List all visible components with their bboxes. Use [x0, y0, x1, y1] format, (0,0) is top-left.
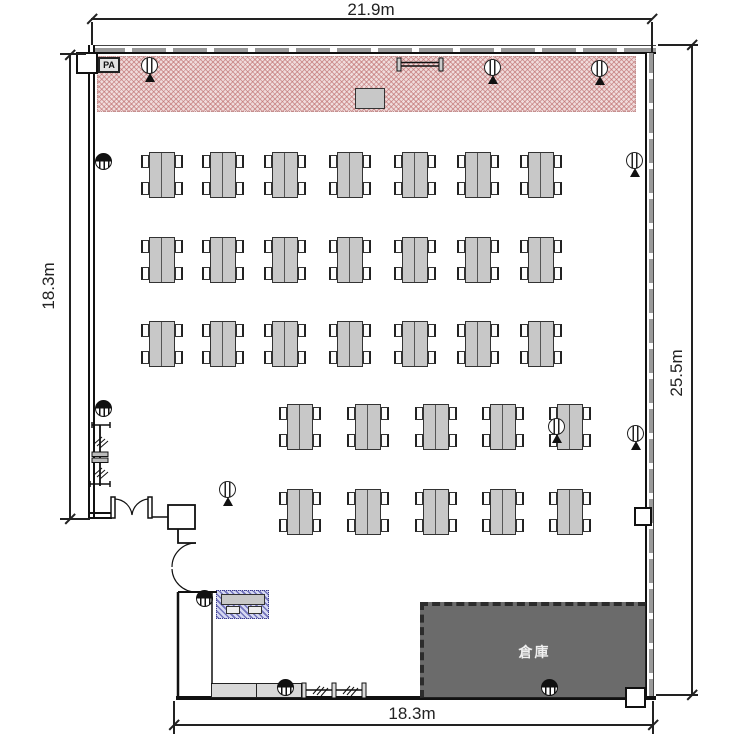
- dim-ext: [60, 518, 90, 520]
- dim-label-right: 25.5m: [667, 323, 687, 423]
- partition-bottom: [302, 683, 366, 698]
- dim-label-top: 21.9m: [321, 0, 421, 20]
- dim-line-left: [69, 55, 71, 520]
- floor-plan: PA 倉庫: [0, 0, 750, 750]
- dim-line-bottom: [173, 724, 653, 726]
- dim-ext: [651, 22, 653, 53]
- stage-batten: [397, 58, 443, 71]
- dim-label-bottom: 18.3m: [362, 704, 462, 724]
- dim-label-left: 18.3m: [39, 236, 59, 336]
- linework-layer: [0, 0, 750, 750]
- dim-ext: [91, 22, 93, 45]
- partition-stack-left: [90, 422, 110, 487]
- lower-left-wall: [178, 592, 217, 700]
- entrance-double-door: [88, 497, 168, 518]
- dim-ext: [173, 701, 175, 734]
- vestibule-door: [172, 529, 196, 592]
- entrance-booth: [168, 505, 195, 529]
- dim-line-right: [691, 46, 693, 695]
- dim-ext: [652, 701, 654, 734]
- dim-ext: [60, 53, 86, 55]
